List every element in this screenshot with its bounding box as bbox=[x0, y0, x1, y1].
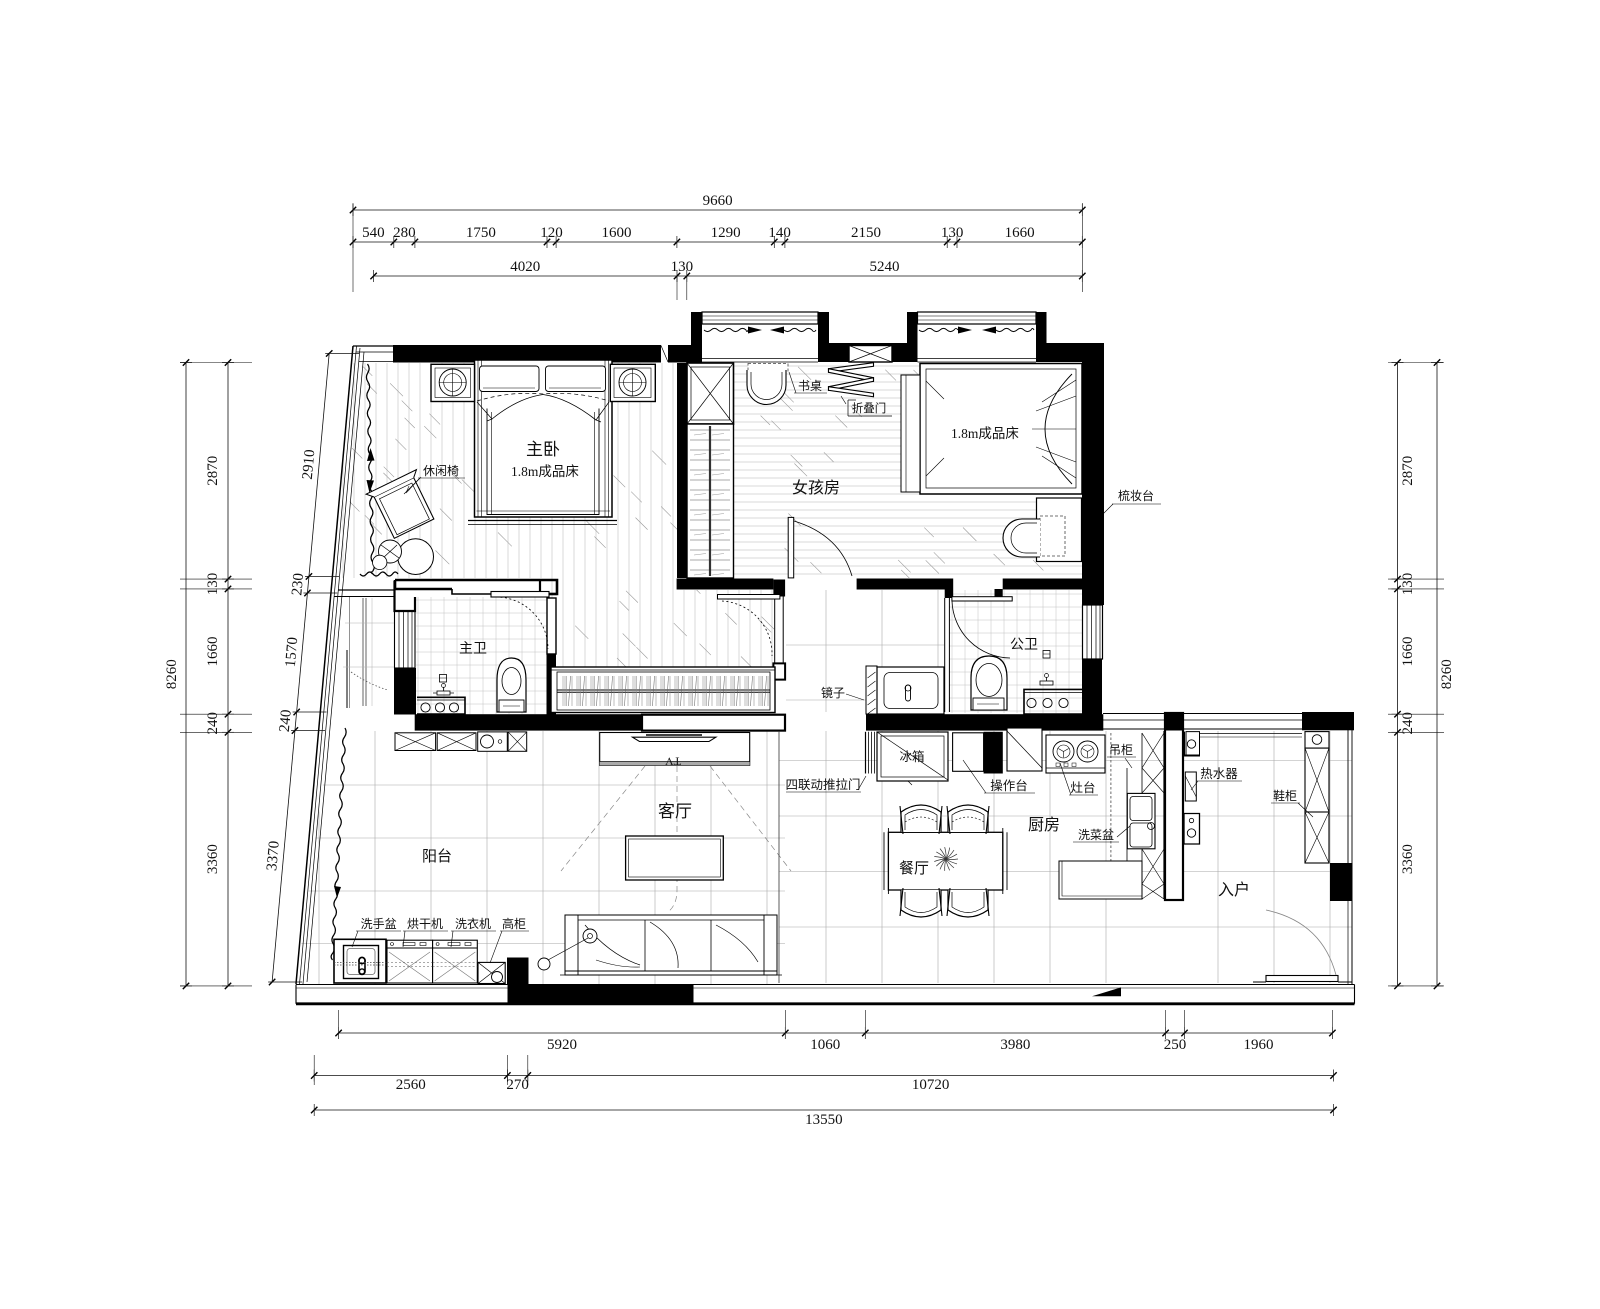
svg-text:270: 270 bbox=[506, 1077, 529, 1093]
svg-text:1060: 1060 bbox=[810, 1037, 840, 1053]
svg-text:洗手盆: 洗手盆 bbox=[361, 917, 397, 931]
svg-text:女孩房: 女孩房 bbox=[792, 478, 840, 497]
svg-text:洗衣机: 洗衣机 bbox=[455, 916, 491, 931]
svg-text:鞋柜: 鞋柜 bbox=[1273, 788, 1297, 803]
svg-text:5240: 5240 bbox=[870, 259, 900, 275]
svg-text:1660: 1660 bbox=[205, 637, 221, 667]
svg-text:130: 130 bbox=[1400, 573, 1416, 596]
svg-text:2150: 2150 bbox=[851, 225, 881, 241]
svg-text:250: 250 bbox=[1164, 1037, 1187, 1053]
svg-text:梳妆台: 梳妆台 bbox=[1118, 488, 1154, 503]
svg-text:书桌: 书桌 bbox=[798, 379, 822, 393]
svg-text:130: 130 bbox=[941, 225, 964, 241]
svg-text:灶台: 灶台 bbox=[1070, 780, 1095, 795]
svg-text:高柜: 高柜 bbox=[502, 916, 526, 931]
svg-text:9660: 9660 bbox=[703, 193, 733, 209]
svg-text:厨房: 厨房 bbox=[1028, 816, 1060, 834]
svg-text:公卫: 公卫 bbox=[1010, 638, 1038, 653]
svg-text:洗菜盆: 洗菜盆 bbox=[1078, 828, 1114, 842]
svg-text:2560: 2560 bbox=[396, 1077, 426, 1093]
svg-text:1290: 1290 bbox=[711, 225, 741, 241]
svg-text:130: 130 bbox=[671, 259, 694, 275]
svg-text:240: 240 bbox=[205, 712, 221, 735]
svg-text:240: 240 bbox=[1400, 712, 1416, 735]
svg-text:140: 140 bbox=[768, 225, 791, 241]
svg-text:TV: TV bbox=[665, 755, 681, 769]
svg-text:吊柜: 吊柜 bbox=[1109, 743, 1133, 757]
svg-text:1.8m成品床: 1.8m成品床 bbox=[511, 464, 579, 479]
svg-text:四联动推拉门: 四联动推拉门 bbox=[785, 777, 860, 792]
svg-text:4020: 4020 bbox=[510, 259, 540, 275]
svg-text:3360: 3360 bbox=[1400, 844, 1416, 874]
svg-text:主卧: 主卧 bbox=[526, 440, 560, 459]
svg-text:折叠门: 折叠门 bbox=[852, 401, 887, 415]
svg-text:280: 280 bbox=[393, 225, 416, 241]
svg-text:休闲椅: 休闲椅 bbox=[423, 464, 459, 478]
svg-text:230: 230 bbox=[289, 572, 307, 596]
svg-text:1960: 1960 bbox=[1244, 1037, 1274, 1053]
svg-text:2870: 2870 bbox=[205, 456, 221, 486]
svg-text:餐厅: 餐厅 bbox=[899, 860, 929, 877]
svg-text:8260: 8260 bbox=[1439, 659, 1455, 689]
svg-text:10720: 10720 bbox=[912, 1077, 950, 1093]
svg-text:13550: 13550 bbox=[805, 1112, 843, 1128]
svg-text:热水器: 热水器 bbox=[1200, 767, 1238, 781]
svg-text:5920: 5920 bbox=[547, 1037, 577, 1053]
svg-text:镜子: 镜子 bbox=[821, 685, 845, 700]
svg-text:1750: 1750 bbox=[466, 225, 496, 241]
svg-text:2910: 2910 bbox=[300, 449, 319, 480]
svg-text:阳台: 阳台 bbox=[422, 848, 452, 865]
svg-text:3980: 3980 bbox=[1000, 1037, 1030, 1053]
svg-text:1600: 1600 bbox=[602, 225, 632, 241]
svg-text:3360: 3360 bbox=[205, 844, 221, 874]
svg-text:入户: 入户 bbox=[1218, 881, 1250, 899]
svg-text:1.8m成品床: 1.8m成品床 bbox=[951, 426, 1019, 441]
svg-text:130: 130 bbox=[205, 573, 221, 596]
svg-text:1570: 1570 bbox=[283, 637, 302, 668]
svg-text:冰箱: 冰箱 bbox=[899, 749, 924, 764]
svg-text:120: 120 bbox=[540, 225, 563, 241]
svg-text:240: 240 bbox=[277, 709, 295, 733]
svg-text:主卫: 主卫 bbox=[459, 641, 487, 657]
svg-text:操作台: 操作台 bbox=[990, 778, 1028, 793]
svg-text:1660: 1660 bbox=[1400, 637, 1416, 667]
svg-text:1660: 1660 bbox=[1005, 225, 1035, 241]
svg-text:3370: 3370 bbox=[264, 840, 283, 871]
svg-text:540: 540 bbox=[362, 225, 385, 241]
svg-text:烘干机: 烘干机 bbox=[407, 917, 443, 931]
svg-text:客厅: 客厅 bbox=[658, 802, 692, 821]
svg-text:2870: 2870 bbox=[1400, 456, 1416, 486]
svg-text:8260: 8260 bbox=[164, 659, 180, 689]
